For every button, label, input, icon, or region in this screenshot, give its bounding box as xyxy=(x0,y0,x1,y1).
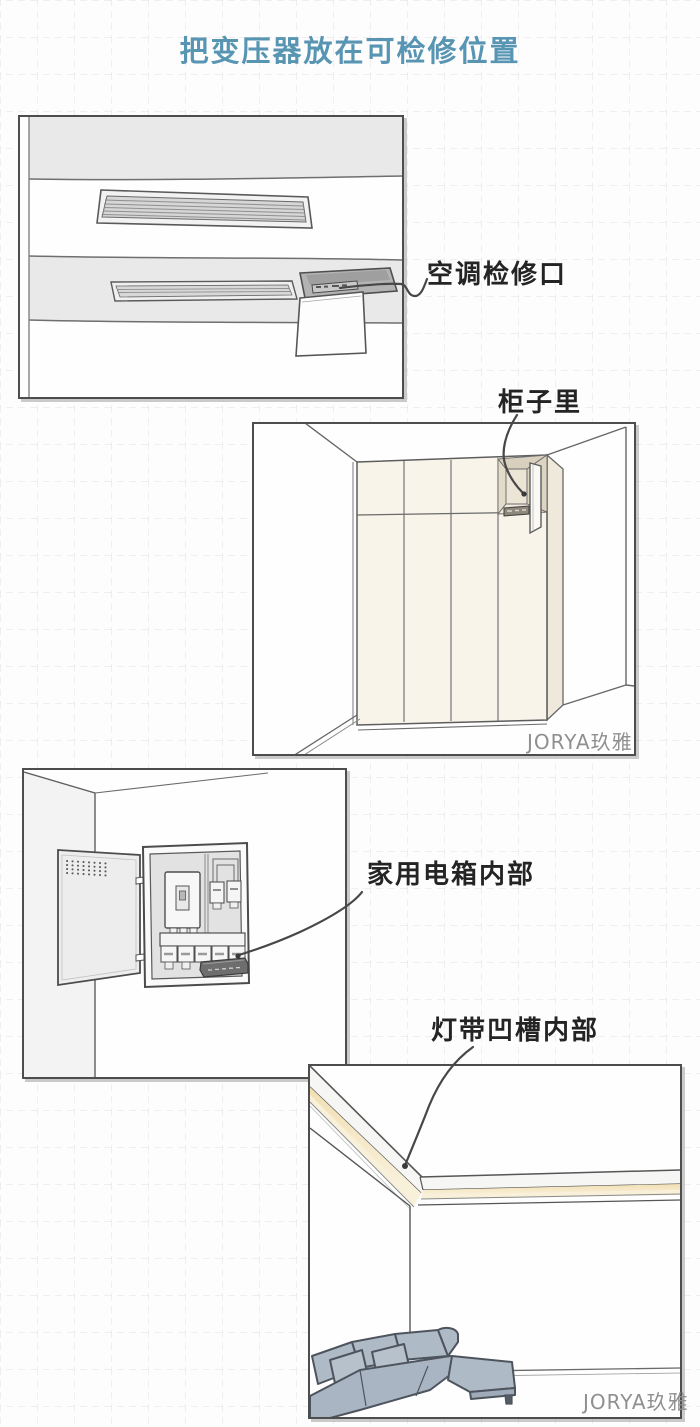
transformer-device xyxy=(200,958,248,977)
ac-ceiling-drawing xyxy=(20,117,402,397)
panel-cabinet xyxy=(252,422,636,756)
hinge xyxy=(136,954,144,961)
cabinet-drawing xyxy=(254,424,634,754)
led-cove-drawing xyxy=(310,1066,680,1417)
watermark-jorya: JORYA玖雅 xyxy=(527,726,633,755)
right-wall-corner xyxy=(626,427,634,686)
ac-louver-vent xyxy=(97,190,312,228)
cubby-door xyxy=(530,463,541,533)
label-cabinet: 柜子里 xyxy=(498,382,582,419)
ceiling-bulkhead-upper xyxy=(29,117,402,180)
panel-ac-ceiling xyxy=(18,115,404,399)
panel-distribution-box xyxy=(22,768,347,1079)
label-distribution-box: 家用电箱内部 xyxy=(367,854,535,891)
main-breaker xyxy=(165,872,200,940)
box-door xyxy=(58,850,144,985)
label-ac-access: 空调检修口 xyxy=(427,254,567,291)
cove-diagonal xyxy=(310,1066,426,1210)
cove-horizontal xyxy=(418,1170,680,1205)
box-body xyxy=(143,843,249,987)
label-led-cove: 灯带凹槽内部 xyxy=(431,1010,599,1047)
floor-skirting xyxy=(293,715,357,754)
transformer-device xyxy=(504,506,529,516)
led-glow xyxy=(310,1087,421,1201)
infographic-canvas: 把变压器放在可检修位置 xyxy=(0,0,700,1427)
sofa xyxy=(310,1328,515,1417)
wardrobe-side xyxy=(547,455,563,720)
ceiling-corner-line xyxy=(305,424,357,462)
watermark-jorya: JORYA玖雅 xyxy=(583,1386,689,1415)
distribution-box-drawing xyxy=(24,770,345,1077)
page-title: 把变压器放在可检修位置 xyxy=(0,28,700,70)
ac-linear-vent xyxy=(111,281,297,301)
panel-led-cove xyxy=(308,1064,682,1419)
